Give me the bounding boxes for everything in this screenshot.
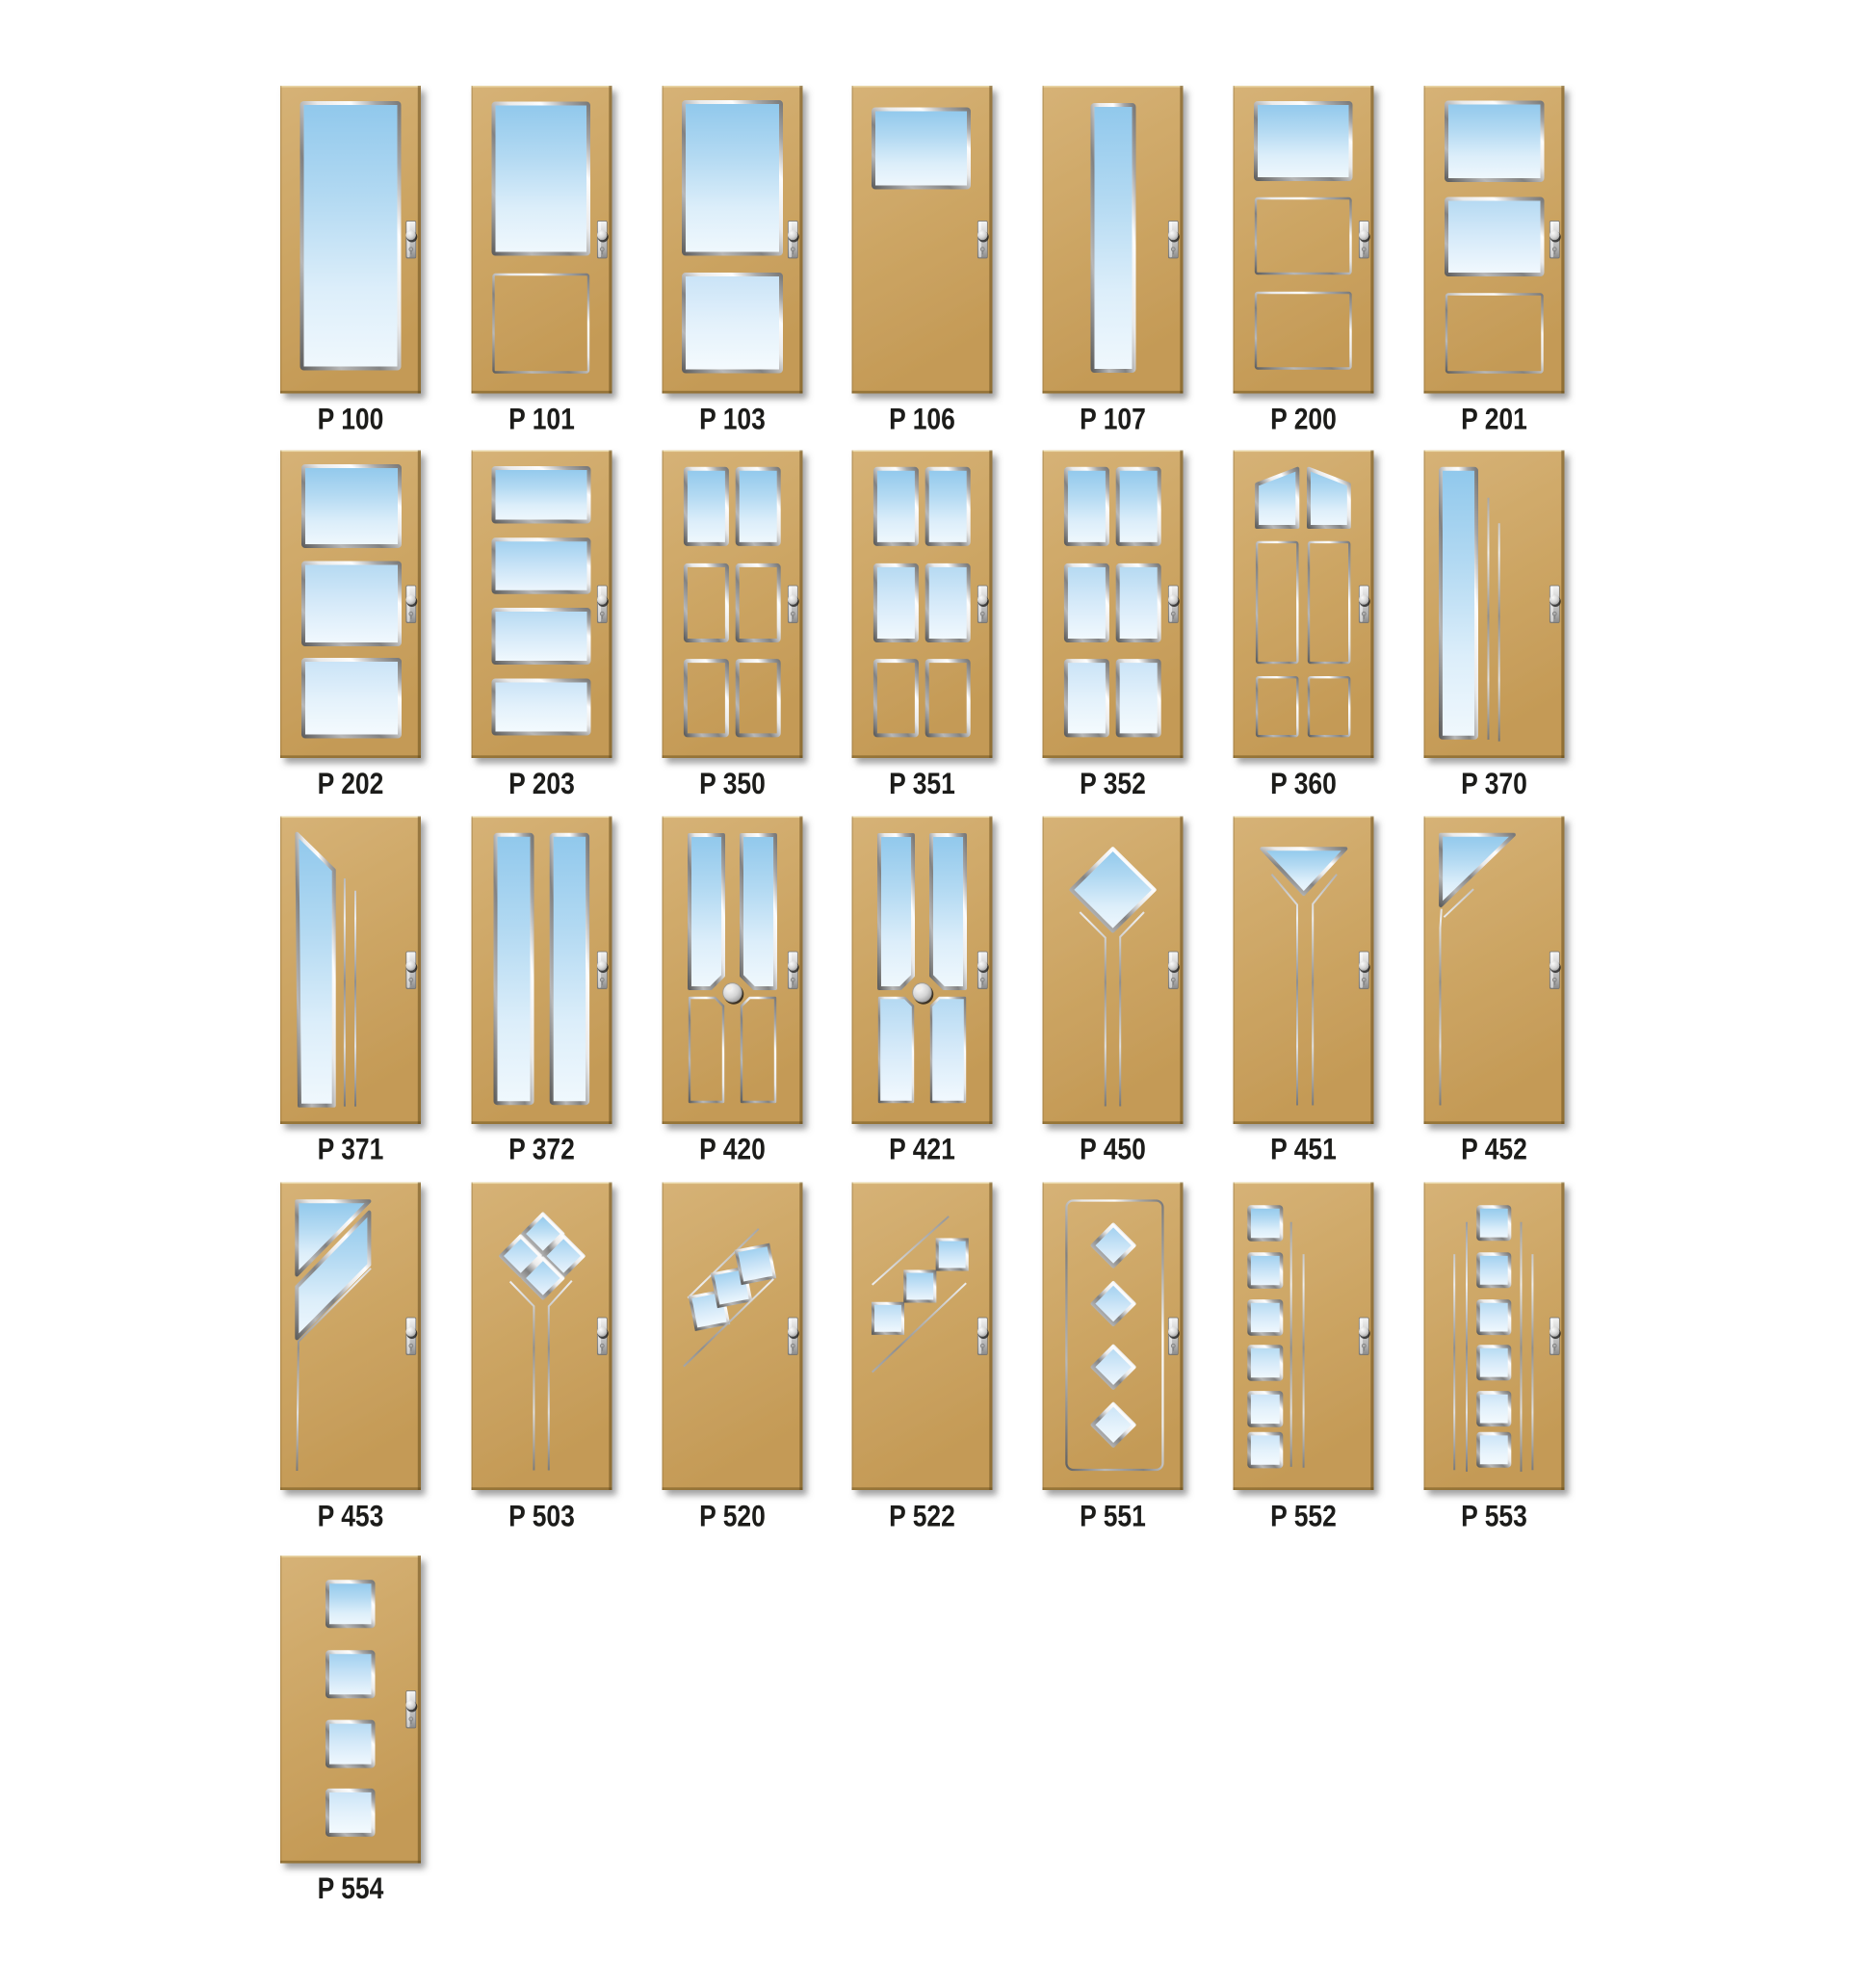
svg-text:P 351: P 351 (889, 768, 955, 801)
svg-text:P 203: P 203 (508, 768, 575, 801)
svg-text:P 553: P 553 (1461, 1500, 1527, 1533)
svg-text:P 101: P 101 (508, 403, 575, 436)
svg-text:P 200: P 200 (1270, 403, 1337, 436)
svg-text:P 103: P 103 (699, 403, 766, 436)
svg-text:P 552: P 552 (1270, 1500, 1337, 1533)
svg-text:P 201: P 201 (1461, 403, 1527, 436)
svg-text:P 420: P 420 (699, 1133, 766, 1166)
svg-text:P 202: P 202 (318, 768, 384, 801)
svg-text:P 522: P 522 (889, 1500, 955, 1533)
svg-text:P 107: P 107 (1080, 403, 1146, 436)
svg-text:P 452: P 452 (1461, 1133, 1527, 1166)
svg-text:P 360: P 360 (1270, 768, 1337, 801)
svg-text:P 106: P 106 (889, 403, 955, 436)
svg-text:P 350: P 350 (699, 768, 766, 801)
svg-text:P 453: P 453 (318, 1500, 384, 1533)
svg-text:P 371: P 371 (318, 1133, 384, 1166)
svg-text:P 450: P 450 (1080, 1133, 1146, 1166)
svg-text:P 451: P 451 (1270, 1133, 1337, 1166)
svg-text:P 520: P 520 (699, 1500, 766, 1533)
svg-text:P 551: P 551 (1080, 1500, 1146, 1533)
svg-text:P 372: P 372 (508, 1133, 575, 1166)
svg-text:P 370: P 370 (1461, 768, 1527, 801)
svg-text:P 100: P 100 (318, 403, 384, 436)
svg-text:P 421: P 421 (889, 1133, 955, 1166)
svg-text:P 554: P 554 (318, 1872, 384, 1906)
svg-text:P 503: P 503 (508, 1500, 575, 1533)
svg-text:P 352: P 352 (1080, 768, 1146, 801)
